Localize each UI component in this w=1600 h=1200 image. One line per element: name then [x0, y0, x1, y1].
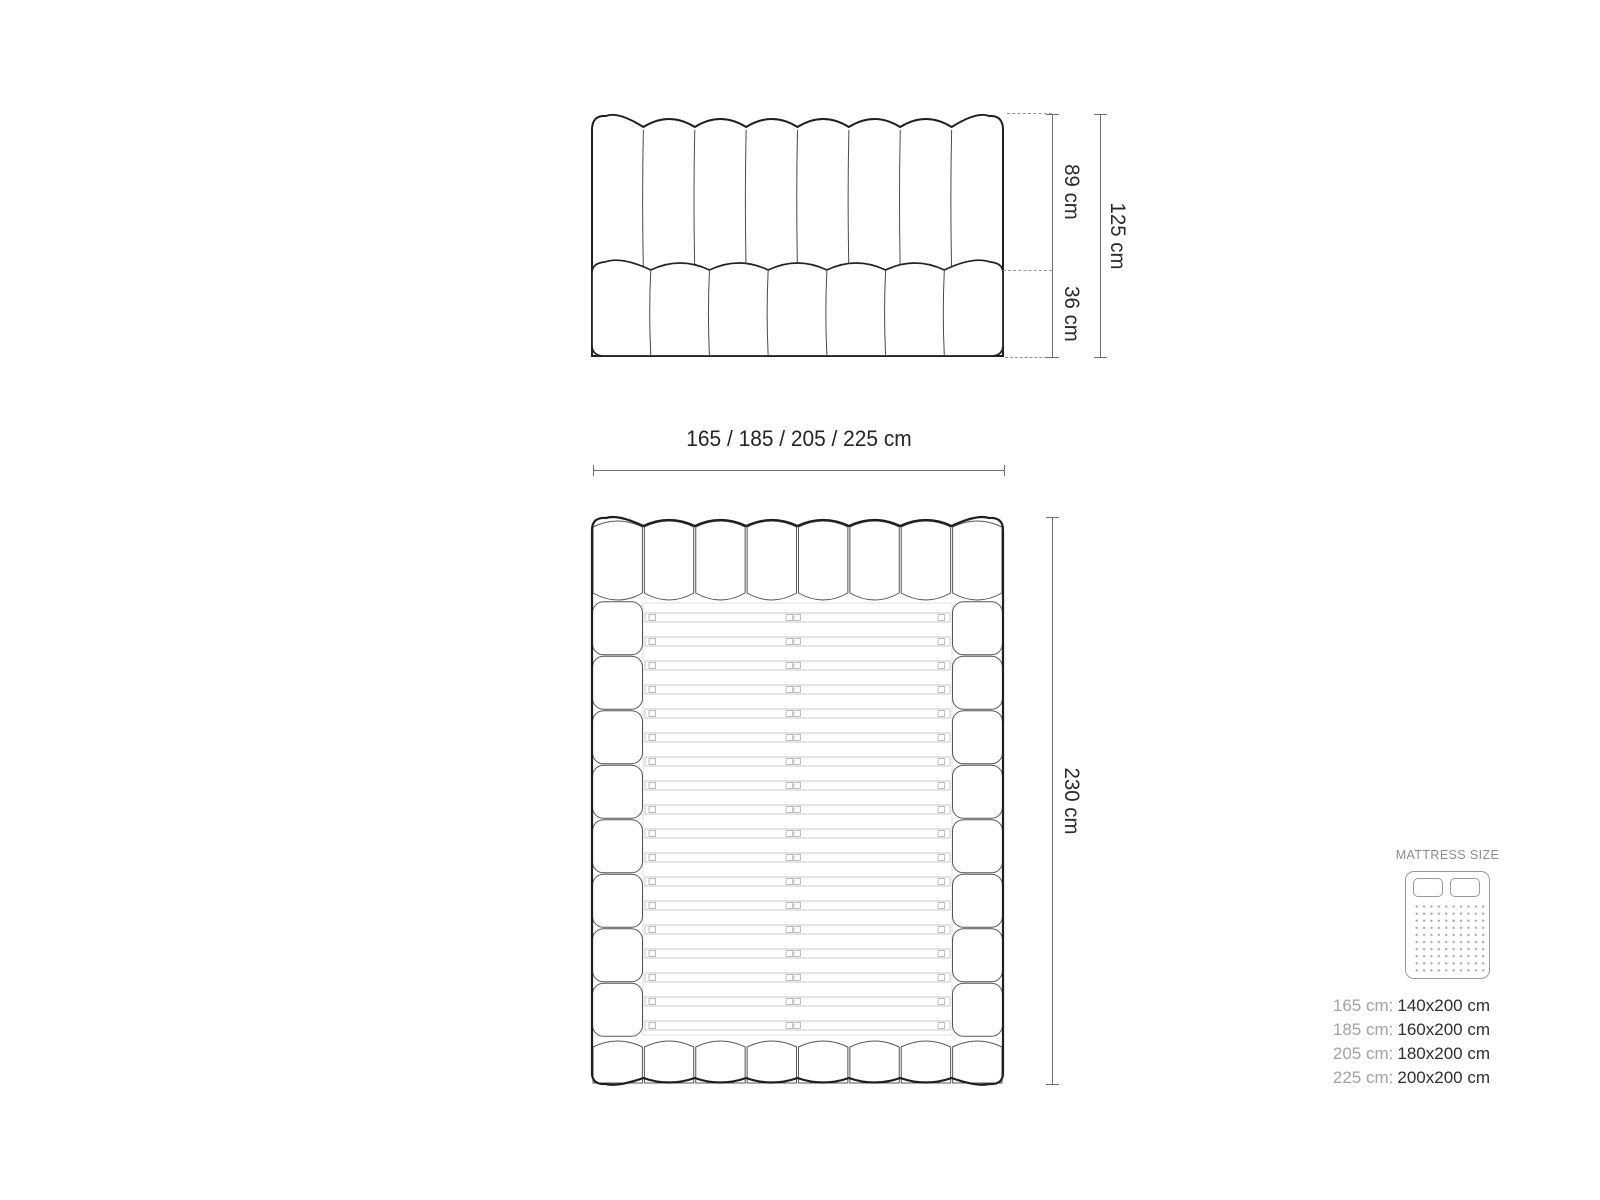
bed-front-view-drawing — [586, 110, 1010, 362]
mattress-size-legend-title: MATTRESS SIZE — [1377, 848, 1518, 862]
tick — [1046, 114, 1059, 115]
size-option-label: 205 cm: — [1333, 1044, 1393, 1063]
dimension-line-width — [593, 470, 1005, 471]
dimension-label-headboard-height: 89 cm — [1061, 152, 1083, 232]
dimension-line-total-height — [1100, 114, 1101, 358]
tick — [593, 465, 594, 476]
mattress-size-row: 225 cm:200x200 cm — [1330, 1066, 1490, 1090]
tick — [1046, 517, 1059, 518]
pillow-right-icon — [1450, 878, 1480, 897]
headboard-top-row — [593, 521, 1002, 600]
pillow-left-icon — [1413, 878, 1443, 897]
mattress-size-row: 185 cm:160x200 cm — [1330, 1018, 1490, 1042]
size-option-label: 165 cm: — [1333, 996, 1393, 1015]
dimension-label-base-height: 36 cm — [1061, 274, 1083, 354]
dimension-label-width-options: 165 / 185 / 205 / 225 cm — [657, 426, 942, 452]
mattress-quilting-dots — [1411, 901, 1485, 973]
mattress-size-list: 165 cm:140x200 cm185 cm:160x200 cm205 cm… — [1330, 994, 1490, 1090]
mattress-dimensions-value: 140x200 cm — [1397, 996, 1490, 1015]
tick — [1094, 357, 1107, 358]
mattress-front — [592, 260, 1003, 356]
side-rail-left — [593, 602, 643, 1037]
mattress-dimensions-value: 200x200 cm — [1397, 1068, 1490, 1087]
tick — [1004, 465, 1005, 476]
slatted-base — [643, 603, 952, 1035]
tick — [1094, 114, 1107, 115]
mattress-size-row: 165 cm:140x200 cm — [1330, 994, 1490, 1018]
side-rail-right — [953, 602, 1003, 1037]
dimension-line-headboard-split — [1052, 114, 1053, 358]
mattress-dimensions-value: 160x200 cm — [1397, 1020, 1490, 1039]
size-option-label: 225 cm: — [1333, 1068, 1393, 1087]
tick — [1046, 1084, 1059, 1085]
bed-dimension-diagram: 89 cm 36 cm 125 cm 165 / 185 / 205 / 225… — [0, 0, 1600, 1200]
dimension-line-length — [1052, 517, 1053, 1085]
extension-line-mattress-top — [1003, 270, 1052, 271]
mattress-size-row: 205 cm:180x200 cm — [1330, 1042, 1490, 1066]
bed-top-view-drawing — [586, 513, 1010, 1089]
size-option-label: 185 cm: — [1333, 1020, 1393, 1039]
tick — [1046, 357, 1059, 358]
mattress-icon — [1405, 871, 1490, 979]
mattress-dimensions-value: 180x200 cm — [1397, 1044, 1490, 1063]
dimension-label-length: 230 cm — [1061, 761, 1083, 841]
footer-row — [593, 1041, 1002, 1083]
extension-line-bottom — [1005, 357, 1052, 358]
dimension-label-total-height: 125 cm — [1107, 196, 1129, 276]
